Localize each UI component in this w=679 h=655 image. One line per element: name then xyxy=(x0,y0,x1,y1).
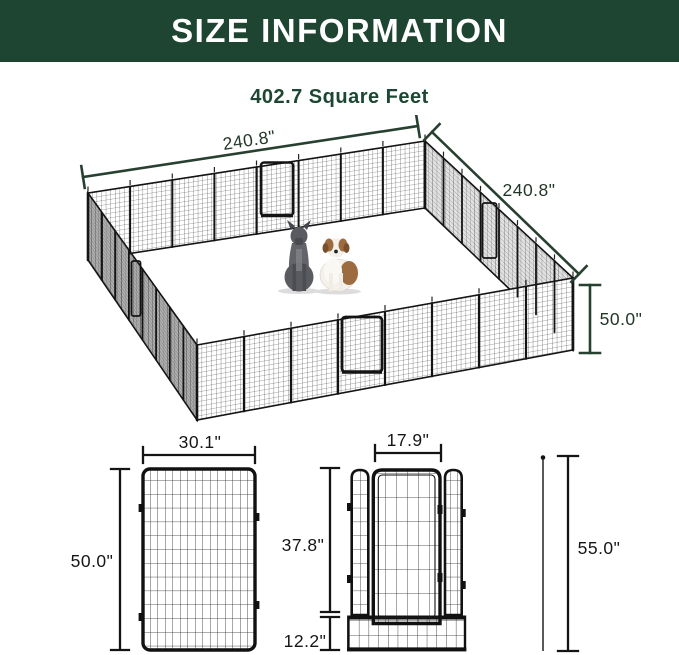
dimension-door-height: 37.8" xyxy=(282,468,339,612)
mesh-panel xyxy=(143,469,255,650)
dimension-bottom-section-height: 12.2" xyxy=(284,617,339,651)
stake-height-diagram: 55.0" xyxy=(541,455,621,651)
door-frame xyxy=(373,470,440,624)
dimension-total-height: 55.0" xyxy=(558,456,620,651)
panel-width-label: 30.1" xyxy=(179,432,222,452)
door-panel-diagram: 17.9" 37.8" 12.2" xyxy=(282,430,467,651)
header-banner: SIZE INFORMATION xyxy=(0,0,679,62)
door-side-strip-right xyxy=(445,470,462,615)
bottom-section-height-label: 12.2" xyxy=(284,631,327,651)
pen-height-label: 50.0" xyxy=(600,309,643,329)
panel-height-label: 50.0" xyxy=(71,551,114,571)
pen-overview-diagram: 240.8" 240.8" 50.0" xyxy=(0,115,679,425)
panel-detail-diagrams: 30.1" 50.0" 17.9" xyxy=(0,425,679,655)
total-area-subtitle: 402.7 Square Feet xyxy=(0,62,679,115)
door-height-label: 37.8" xyxy=(282,535,325,555)
total-height-label: 55.0" xyxy=(578,538,621,558)
dog-saint-bernard xyxy=(320,238,358,291)
dimension-panel-height: 50.0" xyxy=(71,469,129,650)
dogs xyxy=(278,220,361,295)
back-right-width-label: 240.8" xyxy=(502,180,555,200)
dog-great-dane xyxy=(285,220,314,292)
dimension-pen-height: 50.0" xyxy=(580,285,642,353)
door-width-label: 17.9" xyxy=(387,430,430,450)
dimension-door-width: 17.9" xyxy=(375,430,441,461)
page-title: SIZE INFORMATION xyxy=(171,12,508,50)
dimension-panel-width: 30.1" xyxy=(143,432,255,463)
door-side-strip-left xyxy=(352,470,369,615)
single-panel-diagram: 30.1" 50.0" xyxy=(71,432,260,650)
ground-stake-tip xyxy=(541,455,546,460)
